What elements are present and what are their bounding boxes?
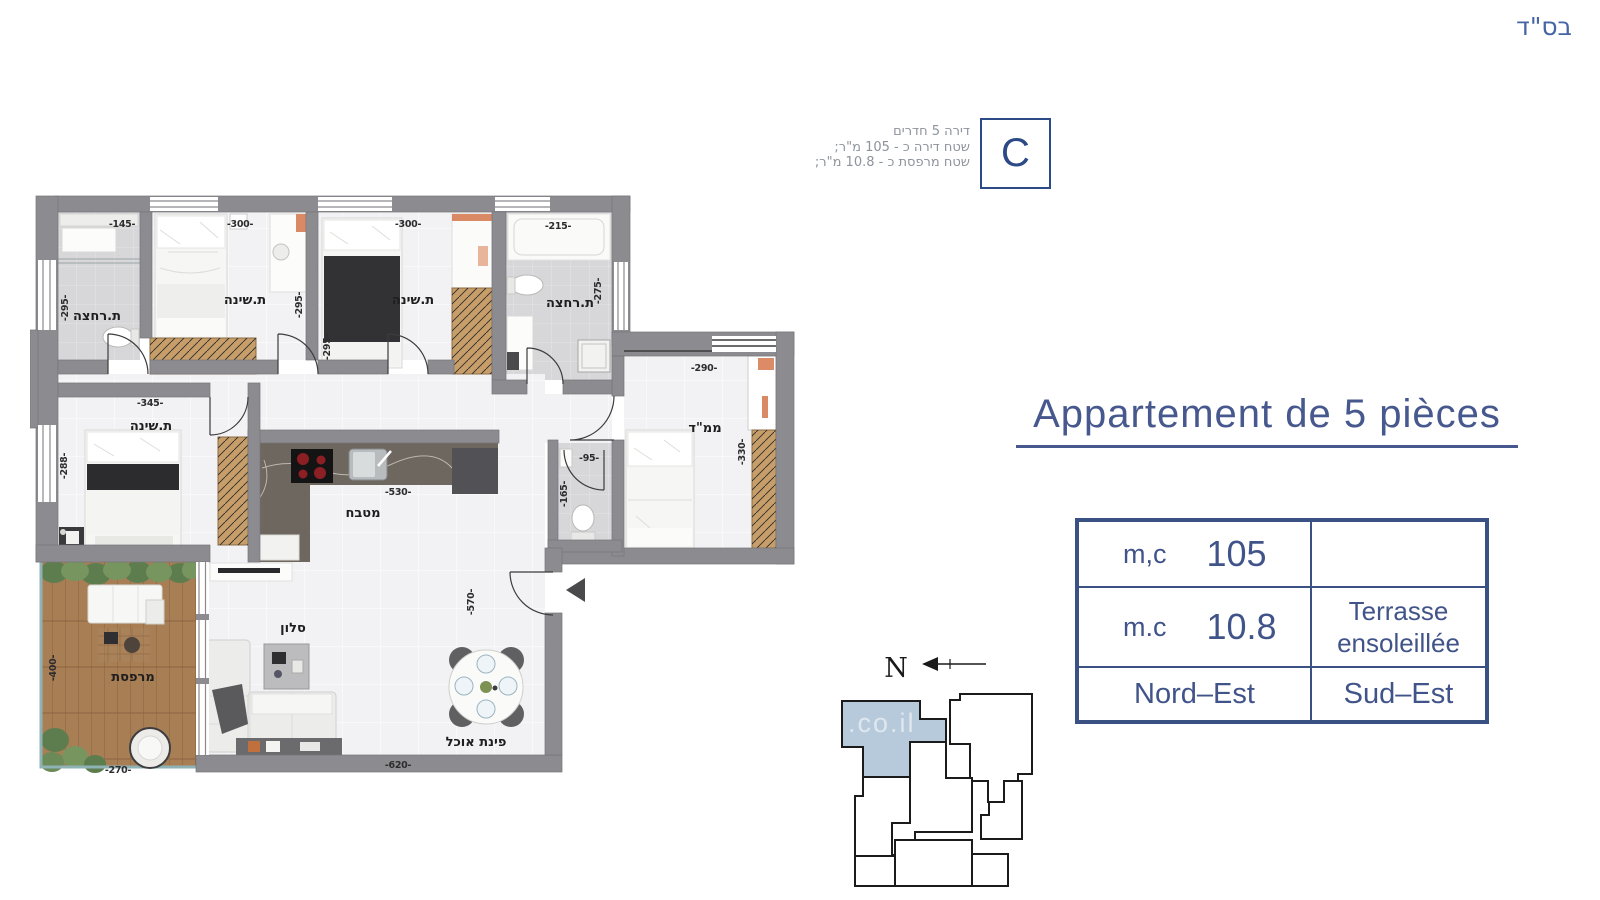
sink [349, 449, 391, 480]
key-plan: N .co.il [810, 628, 1045, 890]
stove [291, 449, 333, 483]
apartment-letter: C [1001, 131, 1030, 176]
north-arrowhead [922, 657, 938, 671]
window-top-bed1 [150, 197, 218, 211]
dark-blanket [324, 256, 400, 342]
room-label-living: סלון [280, 621, 306, 636]
dim-bed1-h: -295- [294, 292, 305, 319]
toilet [511, 275, 543, 295]
dim-wc-w: -95- [579, 453, 599, 464]
tv [218, 568, 280, 573]
room-label-bath1: ת.רחצה [73, 309, 121, 324]
watermark: .co.il [848, 708, 916, 738]
bedroom2-closet [452, 288, 492, 374]
dim-bed2-w: -300- [395, 219, 422, 230]
tv-bench [236, 738, 342, 755]
window-bath2-right [614, 262, 628, 330]
room-label-bed3: ת.שינה [130, 419, 172, 434]
dark-blanket [87, 464, 179, 490]
room-label-bed1: ת.שינה [224, 293, 266, 308]
dim-living-w: -620- [385, 760, 412, 771]
apartment-info: דירה 5 חדרים שטח דירה כ - 105 מ"ר; שטח מ… [700, 124, 970, 171]
window-top-bed2 [318, 197, 392, 211]
room-label-kitchen: מטבח [345, 506, 380, 521]
dim-balcony-w: -270- [105, 765, 132, 776]
table-cell-area: m,c 105 [1078, 521, 1311, 587]
room-label-bed2: ת.שינה [392, 293, 434, 308]
table-cell-orientation-1: Nord–Est [1078, 667, 1311, 721]
apartment-letter-box: C [980, 118, 1051, 189]
terrace-area-label: m.c [1123, 612, 1167, 643]
apartment-info-line3: שטח מרפסת כ - 10.8 מ"ר; [700, 155, 970, 171]
unit-south-left [855, 856, 895, 886]
bsd-text: בס"ד [1452, 12, 1572, 41]
window-left-bed3 [38, 425, 56, 502]
toilet [572, 505, 594, 531]
window-left-bath1 [38, 260, 56, 330]
fridge [452, 448, 498, 494]
bedroom3-wardrobe [218, 437, 248, 545]
room-label-bath2: ת.רחצה [546, 296, 594, 311]
window-balcony [196, 562, 209, 755]
room-label-balcony: מרפסת [111, 670, 155, 685]
table-cell-orientation-2: Sud–Est [1311, 667, 1486, 721]
area-value: 105 [1207, 533, 1267, 575]
summary-table: m,c 105 m.c 10.8 Terrasse ensoleillée No… [1075, 518, 1489, 724]
entrance-arrow [566, 578, 585, 602]
dim-balcony-h: -400- [48, 655, 59, 682]
dim-bed2-h: -295- [322, 334, 333, 361]
table-cell-terrace: Terrasse ensoleillée [1311, 587, 1486, 667]
dining-set [449, 647, 524, 727]
dim-bath2-h: -275- [593, 278, 604, 305]
north-label: N [884, 653, 908, 684]
apartment-info-line1: דירה 5 חדרים [700, 124, 970, 140]
dim-mamad-h: -330- [737, 439, 748, 466]
shower [578, 340, 610, 372]
terrace-line2: ensoleillée [1337, 627, 1460, 659]
dim-bath1-w: -145- [109, 219, 136, 230]
terrace-area-value: 10.8 [1207, 606, 1277, 648]
dim-bath2-w: -215- [545, 221, 572, 232]
table-cell-empty [1311, 521, 1486, 587]
outdoor-rug [98, 628, 150, 662]
dim-mamad-w: -290- [691, 363, 718, 374]
coffee-table [264, 644, 309, 689]
room-label-mamad: ממ"ד [688, 421, 721, 436]
north-arrow: N [884, 653, 986, 684]
dim-bed1-w: -300- [227, 219, 254, 230]
dim-living-h: -570- [466, 589, 477, 616]
room-label-dining: פינת אוכל [446, 735, 507, 750]
vanity [62, 228, 116, 252]
window-top-bath2 [495, 197, 550, 211]
area-label: m,c [1123, 539, 1167, 570]
apartment-info-line2: שטח דירה כ - 105 מ"ר; [700, 140, 970, 156]
unit-south-center [895, 840, 972, 886]
dim-kitchen-w: -530- [385, 487, 412, 498]
mamad-closet [752, 430, 776, 548]
terrace-line1: Terrasse [1349, 595, 1449, 627]
table-cell-terrace-area: m.c 10.8 [1078, 587, 1311, 667]
unit-south-right [972, 854, 1008, 886]
floor-plan: ת.רחצה ת.שינה ת.שינה ת.רחצה ממ"ד ת.שינה … [30, 170, 830, 790]
dim-bed3-h: -288- [59, 453, 70, 480]
dim-bath1-h: -295- [60, 295, 71, 322]
round-lounge-chair [130, 728, 170, 768]
hall-floor [545, 394, 612, 443]
dim-bed3-w: -345- [137, 398, 164, 409]
dim-wc-h: -165- [559, 481, 570, 508]
page-title: Appartement de 5 pièces [1016, 392, 1518, 448]
